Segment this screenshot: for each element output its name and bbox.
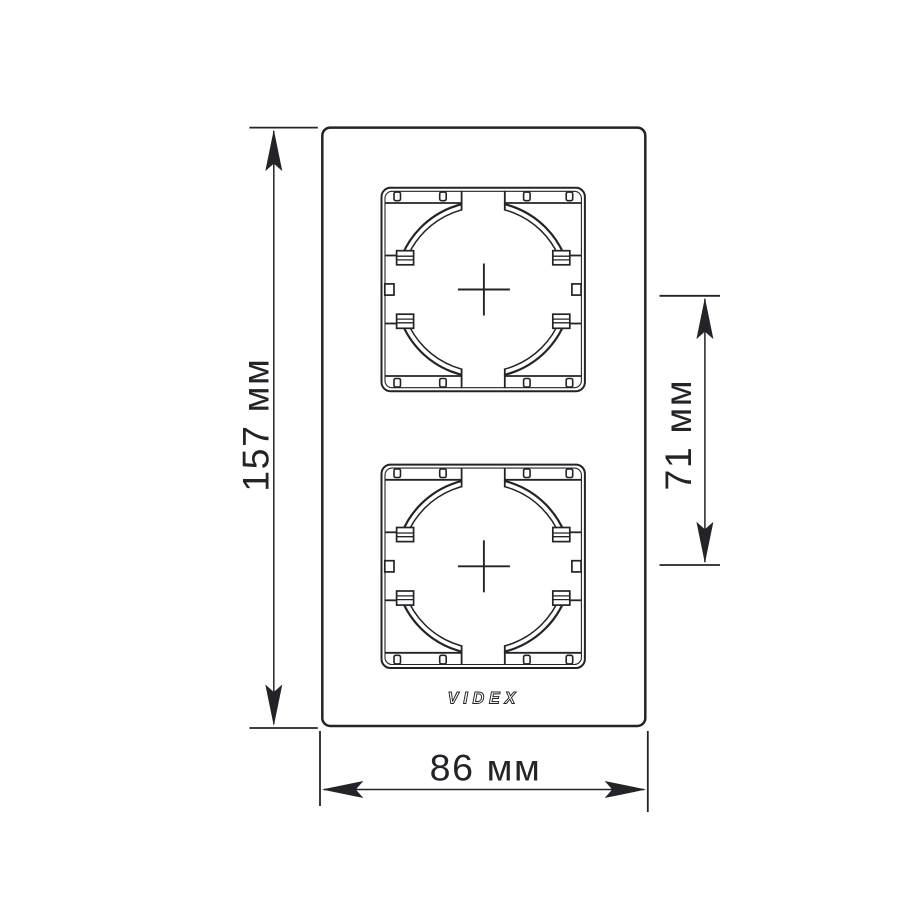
svg-text:157 мм: 157 мм	[234, 358, 276, 492]
svg-text:VIDEX: VIDEX	[448, 690, 521, 708]
svg-text:71 мм: 71 мм	[657, 379, 699, 491]
svg-text:86 мм: 86 мм	[430, 746, 542, 788]
